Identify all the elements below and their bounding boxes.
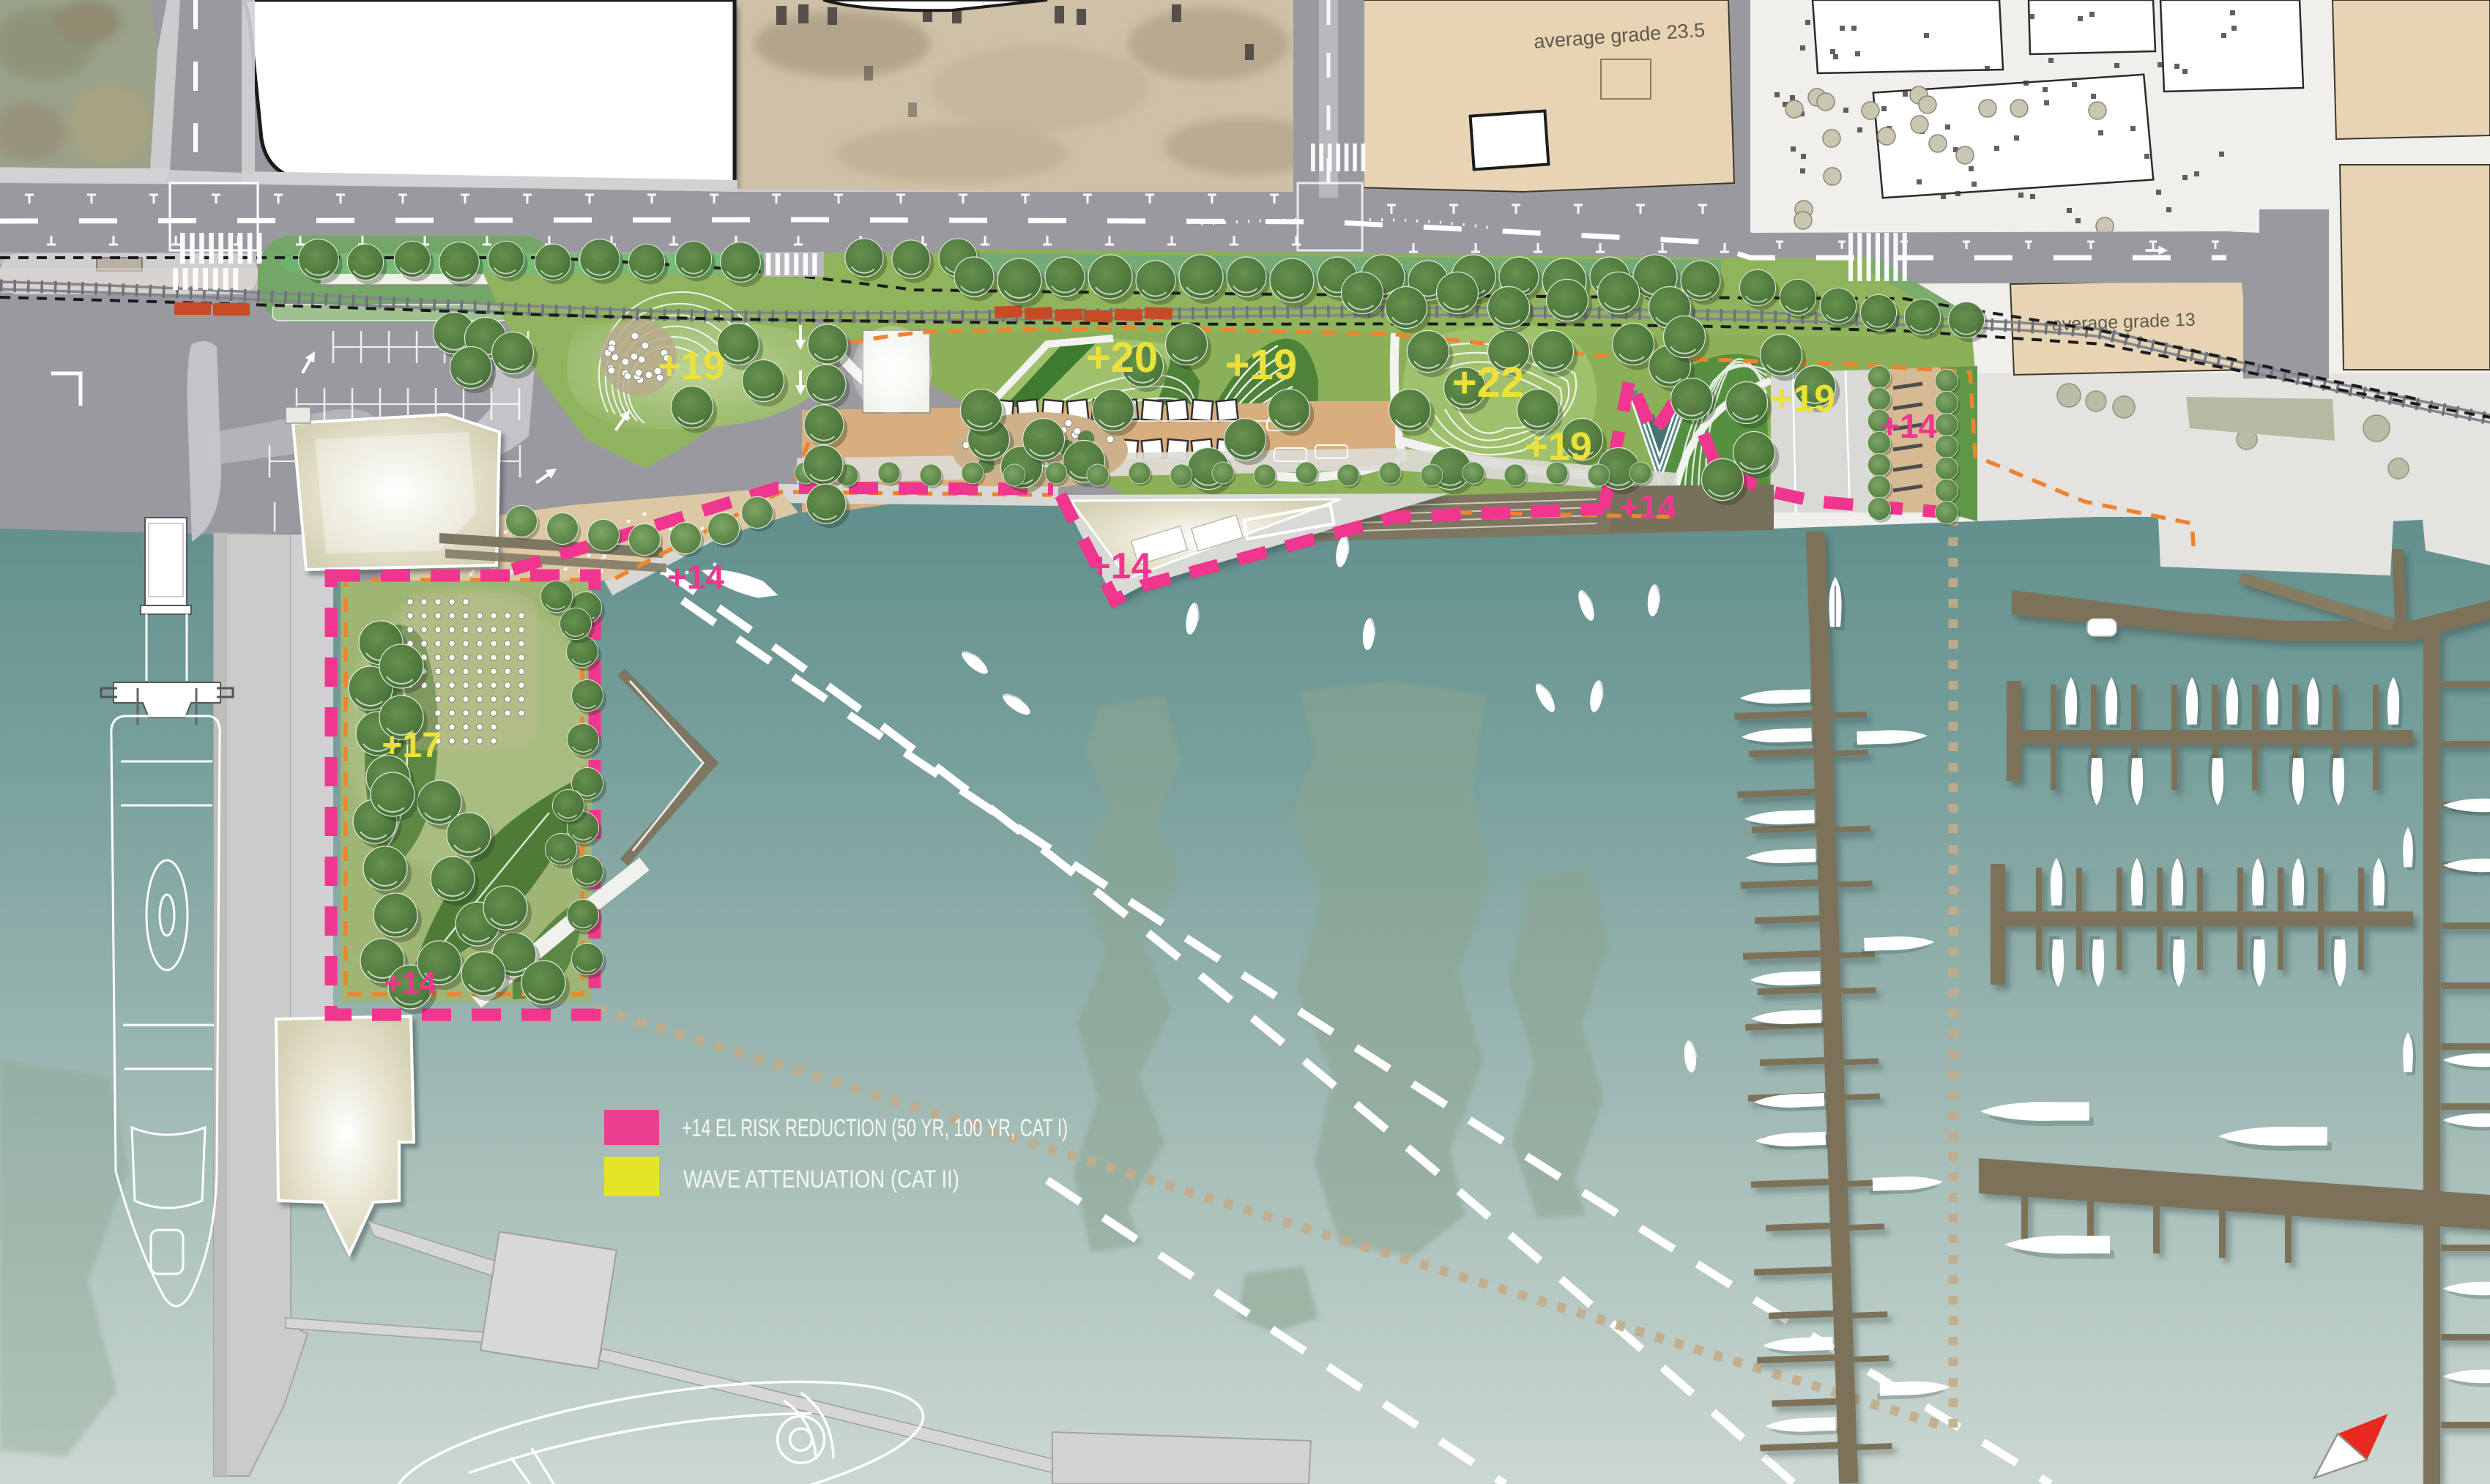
- svg-text:+20: +20: [1086, 334, 1158, 381]
- svg-text:+19: +19: [1225, 341, 1297, 389]
- svg-text:+14: +14: [384, 966, 436, 1000]
- svg-text:+14: +14: [667, 558, 724, 596]
- svg-text:+14: +14: [1619, 488, 1676, 526]
- svg-text:+14 EL RISK REDUCTION (50 YR,: +14 EL RISK REDUCTION (50 YR, 100 YR, CA…: [682, 1114, 1068, 1142]
- svg-text:+17: +17: [382, 726, 441, 765]
- svg-text:+22: +22: [1452, 359, 1524, 406]
- svg-text:+14: +14: [1880, 407, 1937, 445]
- svg-text:WAVE ATTENUATION (CAT II): WAVE ATTENUATION (CAT II): [683, 1166, 959, 1193]
- svg-text:+19: +19: [1771, 378, 1835, 420]
- svg-text:+14: +14: [1090, 545, 1152, 586]
- svg-text:+19: +19: [1525, 425, 1592, 469]
- svg-text:+19: +19: [658, 344, 725, 388]
